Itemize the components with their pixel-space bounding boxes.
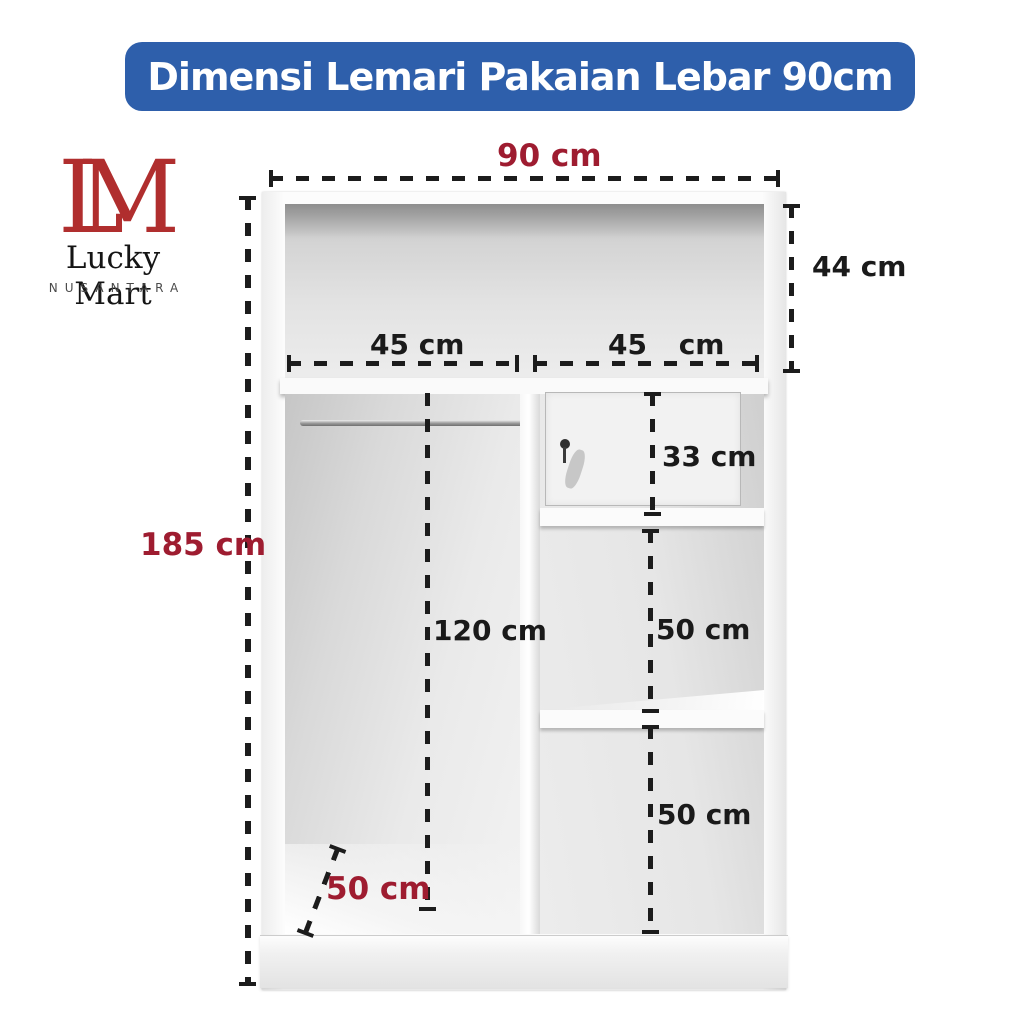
center-divider xyxy=(520,394,540,934)
dimension-line-total-width xyxy=(270,176,779,181)
dimension-label-upper-shelf-height: 50 cm xyxy=(656,613,751,646)
dimension-line-lower-shelf-height xyxy=(648,726,653,933)
dimension-label-hanging-height: 120 cm xyxy=(433,614,547,647)
dimension-label-total-width: 90 cm xyxy=(497,138,602,174)
dimension-line-top-height xyxy=(789,205,794,372)
hanging-rail xyxy=(300,420,528,426)
dimension-label-total-height: 185 cm xyxy=(140,527,240,563)
hanging-compartment xyxy=(285,394,520,934)
key-icon xyxy=(563,447,566,463)
dimension-line-right-width xyxy=(534,361,758,366)
title-banner: Dimensi Lemari Pakaian Lebar 90cm xyxy=(125,42,915,111)
page-title: Dimensi Lemari Pakaian Lebar 90cm xyxy=(147,55,892,99)
logo-name: Lucky Mart xyxy=(28,240,198,312)
dimension-label-left-width: 45 cm xyxy=(370,328,465,361)
key-shadow xyxy=(562,448,588,490)
dimension-label-lower-shelf-height: 50 cm xyxy=(657,798,752,831)
dimension-label-locker-height: 33 cm xyxy=(662,440,757,473)
product-dimension-image: Dimensi Lemari Pakaian Lebar 90cm M L Lu… xyxy=(0,0,1024,1024)
dimension-line-left-width xyxy=(288,361,518,366)
dimension-label-depth: 50 cm xyxy=(326,871,431,907)
base-plinth xyxy=(260,935,788,988)
dimension-line-locker-height xyxy=(650,393,655,515)
dimension-label-top-height: 44 cm xyxy=(812,250,907,283)
top-compartment-shadow xyxy=(285,204,764,238)
brand-logo: M L Lucky Mart NUSANTARA xyxy=(28,148,198,308)
logo-subtitle: NUSANTARA xyxy=(32,281,202,295)
logo-monogram-l: L xyxy=(58,148,124,248)
dimension-line-total-height xyxy=(245,197,251,985)
dimension-label-right-width: 45 cm xyxy=(608,328,725,361)
dimension-line-upper-shelf-height xyxy=(648,530,653,712)
dimension-line-hanging-height xyxy=(425,393,430,910)
